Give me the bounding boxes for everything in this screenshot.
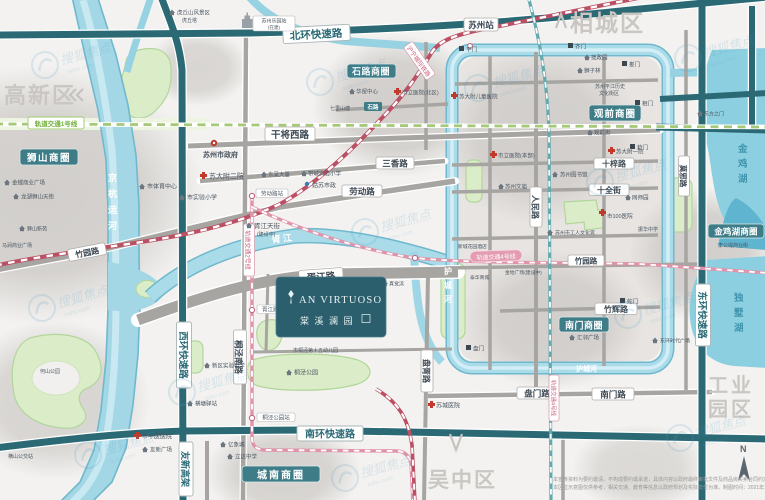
svg-text:友新高架: 友新高架 bbox=[180, 451, 191, 487]
svg-text:桐泾公园站: 桐泾公园站 bbox=[262, 414, 290, 422]
svg-text:娄门: 娄门 bbox=[629, 61, 640, 69]
svg-text:观前商圈: 观前商圈 bbox=[593, 108, 636, 120]
svg-text:城: 城 bbox=[444, 280, 452, 290]
svg-text:城南商圈: 城南商圈 bbox=[257, 469, 305, 482]
svg-text:东环时代广场: 东环时代广场 bbox=[660, 338, 690, 345]
svg-text:金: 金 bbox=[737, 143, 748, 155]
svg-text:东吴大厦: 东吴大厦 bbox=[268, 171, 291, 179]
svg-text:市立医院(本部): 市立医院(本部) bbox=[498, 152, 535, 160]
svg-text:AN VIRTUOSO: AN VIRTUOSO bbox=[299, 295, 382, 306]
svg-text:桐泾公园: 桐泾公园 bbox=[294, 369, 318, 377]
svg-text:南门商圈: 南门商圈 bbox=[565, 320, 603, 331]
svg-text:苏州乐园站: 苏州乐园站 bbox=[261, 18, 286, 25]
svg-text:相城区: 相城区 bbox=[570, 10, 645, 36]
svg-text:虎丘山风景区: 虎丘山风景区 bbox=[177, 9, 211, 17]
svg-text:(在建): (在建) bbox=[268, 24, 280, 31]
svg-text:盘门: 盘门 bbox=[473, 345, 484, 353]
svg-text:苏州站: 苏州站 bbox=[468, 20, 494, 30]
svg-text:N: N bbox=[740, 444, 747, 454]
svg-text:干将西路: 干将西路 bbox=[271, 129, 310, 141]
svg-text:七里山塘: 七里山塘 bbox=[330, 105, 350, 112]
svg-text:金鸡湖商圈: 金鸡湖商圈 bbox=[713, 227, 758, 237]
svg-text:龙湖狮山天街: 龙湖狮山天街 bbox=[21, 193, 55, 201]
svg-text:苏州图书馆: 苏州图书馆 bbox=[560, 171, 588, 179]
svg-text:狮子林: 狮子林 bbox=[584, 67, 601, 75]
svg-text:劳动路站: 劳动路站 bbox=[261, 190, 284, 198]
svg-text:三香路: 三香路 bbox=[382, 159, 408, 169]
svg-text:真觉浜: 真觉浜 bbox=[389, 281, 404, 288]
svg-text:友新广场: 友新广场 bbox=[150, 446, 173, 454]
svg-text:何山公园: 何山公园 bbox=[40, 368, 60, 375]
svg-text:泰华商城: 泰华商城 bbox=[470, 274, 489, 281]
svg-text:东环快速路: 东环快速路 bbox=[696, 291, 708, 339]
svg-text:湖: 湖 bbox=[738, 173, 748, 185]
svg-text:轨道交通2号线: 轨道交通2号线 bbox=[244, 230, 252, 269]
svg-text:姑苏市政: 姑苏市政 bbox=[312, 182, 336, 190]
svg-text:本宣传资料为要约邀请，不构成要约或承诺，具体内容以政府最终审: 本宣传资料为要约邀请，不构成要约或承诺，具体内容以政府最终审批文件及商品房买卖合… bbox=[553, 476, 765, 483]
svg-text:杭: 杭 bbox=[108, 188, 117, 199]
svg-text:莫邪路: 莫邪路 bbox=[679, 164, 689, 188]
svg-text:苏大附二院: 苏大附二院 bbox=[209, 172, 244, 181]
svg-text:文化街区: 文化街区 bbox=[599, 90, 619, 97]
svg-text:市体育中心: 市体育中心 bbox=[147, 183, 177, 191]
svg-text:拙政园: 拙政园 bbox=[591, 54, 608, 62]
svg-text:横山公交站: 横山公交站 bbox=[8, 453, 33, 460]
svg-text:劳动路: 劳动路 bbox=[349, 187, 375, 197]
svg-text:京: 京 bbox=[108, 172, 117, 183]
svg-text:马涧商业广场: 马涧商业广场 bbox=[2, 242, 32, 249]
svg-text:虎丘塔: 虎丘塔 bbox=[182, 17, 197, 24]
svg-text:新城花园酒店: 新城花园酒店 bbox=[458, 243, 487, 250]
svg-text:立达中学: 立达中学 bbox=[235, 453, 258, 461]
svg-text:(建设中): (建设中) bbox=[257, 231, 276, 238]
svg-text:相门: 相门 bbox=[642, 100, 653, 108]
svg-text:苏州市工人文化宫: 苏州市工人文化宫 bbox=[555, 230, 595, 237]
svg-text:工业: 工业 bbox=[708, 374, 754, 397]
svg-text:苏州文庙: 苏州文庙 bbox=[505, 183, 528, 191]
svg-text:运: 运 bbox=[108, 205, 118, 215]
svg-text:人民路: 人民路 bbox=[531, 195, 541, 220]
svg-text:盘门路: 盘门路 bbox=[524, 389, 550, 399]
svg-text:轨道交通4号线: 轨道交通4号线 bbox=[550, 380, 558, 417]
svg-text:市立医院(北区): 市立医院(北区) bbox=[402, 89, 439, 97]
svg-text:金螳商业广场: 金螳商业广场 bbox=[12, 179, 46, 187]
svg-text:网师园: 网师园 bbox=[632, 194, 649, 202]
svg-text:轨道交通1号线: 轨道交通1号线 bbox=[35, 119, 78, 128]
svg-text:胥江天街: 胥江天街 bbox=[254, 221, 281, 230]
svg-text:李公堤商业街: 李公堤商业街 bbox=[718, 242, 748, 249]
svg-text:平门: 平门 bbox=[466, 46, 477, 54]
svg-text:苏州市政府: 苏州市政府 bbox=[203, 150, 238, 159]
svg-text:狮山商圈: 狮山商圈 bbox=[26, 152, 71, 164]
svg-text:南门路: 南门路 bbox=[600, 390, 626, 400]
svg-text:振华中学: 振华中学 bbox=[638, 226, 658, 233]
svg-text:西环快速路: 西环快速路 bbox=[177, 331, 189, 379]
svg-text:苏城医院: 苏城医院 bbox=[436, 402, 460, 410]
svg-text:金地广场(建设中): 金地广场(建设中) bbox=[505, 269, 542, 276]
svg-text:汇邻广场: 汇邻广场 bbox=[577, 334, 600, 342]
svg-text:市实验小学: 市实验小学 bbox=[187, 194, 217, 202]
svg-text:高新区: 高新区 bbox=[4, 83, 76, 108]
svg-text:护: 护 bbox=[444, 266, 452, 276]
svg-text:带城实验小学: 带城实验小学 bbox=[308, 170, 342, 178]
svg-text:河: 河 bbox=[108, 220, 117, 231]
svg-text:南环快速路: 南环快速路 bbox=[305, 428, 356, 441]
svg-text:观前街: 观前街 bbox=[594, 129, 611, 137]
svg-text:石路: 石路 bbox=[366, 103, 379, 111]
svg-text:棠溪澜园: 棠溪澜园 bbox=[300, 315, 358, 326]
svg-text:本区位示意图仅供参考，相关交通、教育等信息以政府规划及实际交: 本区位示意图仅供参考，相关交通、教育等信息以政府规划及实际交付为准。制图时间：2… bbox=[553, 484, 765, 491]
svg-text:护城河: 护城河 bbox=[576, 364, 597, 373]
svg-text:苏大附儿童医院: 苏大附儿童医院 bbox=[459, 93, 498, 101]
svg-text:亿象城: 亿象城 bbox=[228, 441, 245, 449]
svg-text:市100医院: 市100医院 bbox=[607, 212, 633, 220]
svg-text:盘胥路: 盘胥路 bbox=[422, 359, 432, 384]
svg-text:河: 河 bbox=[444, 294, 452, 304]
svg-text:华贸中心: 华贸中心 bbox=[356, 88, 379, 96]
svg-text:吴中区: 吴中区 bbox=[428, 469, 497, 492]
svg-text:市桐泾第十五幼儿园: 市桐泾第十五幼儿园 bbox=[293, 347, 338, 354]
svg-text:齐门: 齐门 bbox=[575, 43, 586, 51]
svg-text:湖: 湖 bbox=[734, 322, 744, 334]
svg-text:鸡: 鸡 bbox=[737, 158, 748, 170]
svg-text:墅: 墅 bbox=[734, 308, 744, 319]
svg-text:竹园路: 竹园路 bbox=[574, 256, 598, 266]
svg-text:葑门: 葑门 bbox=[637, 144, 648, 152]
svg-text:独: 独 bbox=[733, 292, 744, 304]
svg-text:狮山新苑: 狮山新苑 bbox=[27, 226, 47, 233]
svg-text:苏州平江历史: 苏州平江历史 bbox=[595, 83, 625, 90]
svg-text:东方之门: 东方之门 bbox=[704, 111, 724, 118]
